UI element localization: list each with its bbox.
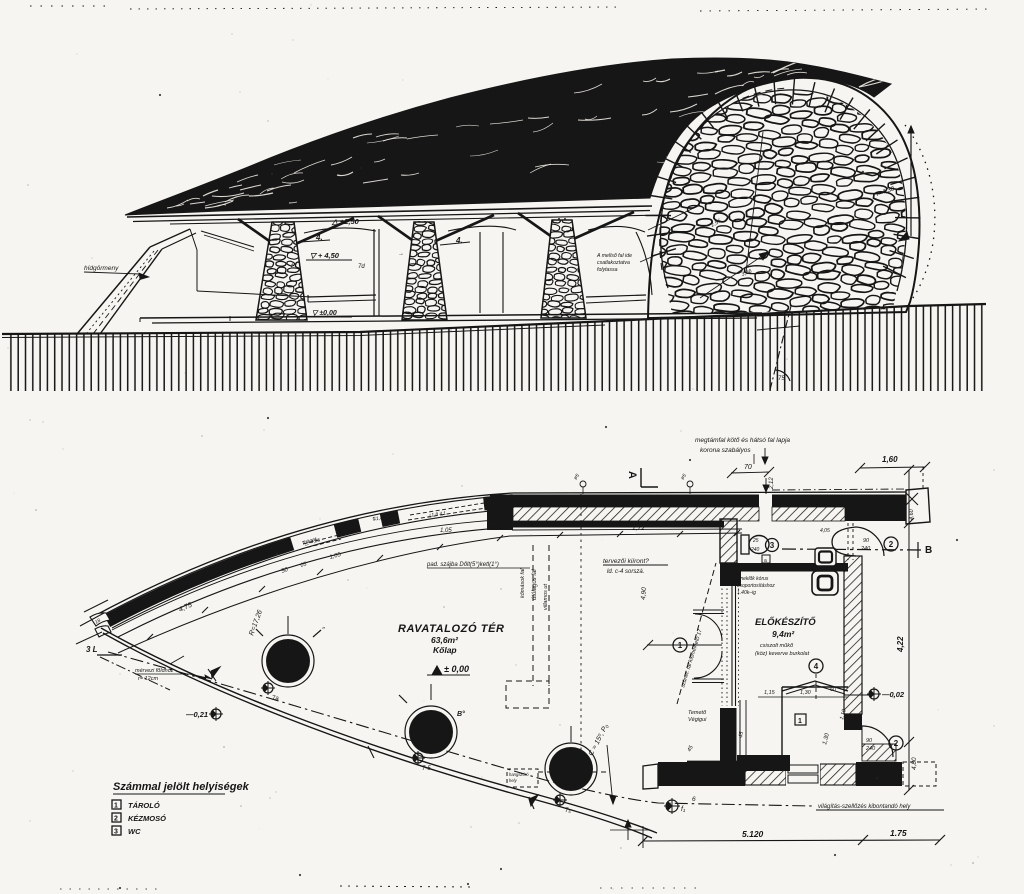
svg-text:villamos ut: villamos ut	[543, 584, 549, 610]
svg-text:megtámfal kötő és hátsó fal la: megtámfal kötő és hátsó fal lapja	[695, 437, 790, 444]
svg-text:RAVATALOZÓ TÉR: RAVATALOZÓ TÉR	[398, 622, 505, 635]
svg-text:50: 50	[528, 523, 535, 529]
svg-text:3: 3	[770, 541, 775, 550]
svg-text:KÉZMOSÓ: KÉZMOSÓ	[128, 814, 166, 823]
svg-text:90: 90	[863, 538, 870, 544]
svg-text:hely: hely	[509, 778, 518, 783]
svg-text:△ +2,50: △ +2,50	[331, 217, 360, 226]
svg-text:csiszolt műkő: csiszolt műkő	[760, 643, 794, 649]
svg-text:4,22: 4,22	[896, 636, 905, 653]
svg-text:→: →	[398, 251, 404, 257]
svg-text:csoportosításhoz: csoportosításhoz	[737, 583, 775, 589]
svg-text:4,80: 4,80	[911, 757, 918, 770]
svg-text:1,72: 1,72	[632, 525, 645, 532]
svg-text:1.40k–ig: 1.40k–ig	[737, 590, 756, 596]
svg-text:ld. c-4 sorszá.: ld. c-4 sorszá.	[607, 569, 644, 575]
svg-text:TÁROLÓ: TÁROLÓ	[128, 801, 160, 810]
svg-text:240: 240	[860, 546, 871, 552]
svg-text:A mellső fal ide: A mellső fal ide	[596, 253, 632, 259]
svg-text:63,6m²: 63,6m²	[431, 635, 459, 645]
svg-text:4,05: 4,05	[820, 528, 830, 534]
svg-text:15: 15	[547, 523, 553, 529]
svg-text:7a: 7a	[272, 696, 279, 702]
svg-text:↗: ↗	[858, 170, 864, 177]
svg-text:B°: B°	[457, 710, 465, 718]
svg-text:Temető: Temető	[688, 710, 707, 716]
svg-text:⇅: ⇅	[578, 495, 583, 502]
svg-text:90: 90	[866, 738, 873, 744]
svg-text:1,15: 1,15	[764, 690, 776, 696]
svg-text:1,60: 1,60	[882, 455, 898, 464]
svg-text:7-5: 7-5	[422, 766, 431, 772]
svg-text:Számmal jelölt helyiségek: Számmal jelölt helyiségek	[113, 781, 250, 793]
svg-text:2: 2	[114, 816, 118, 823]
svg-text:▽ + 4,50: ▽ + 4,50	[310, 251, 340, 260]
svg-text:kőmások fal: kőmások fal	[520, 568, 526, 598]
svg-text:WC: WC	[128, 827, 141, 836]
svg-text:7₅: 7₅	[565, 808, 571, 814]
svg-text:B: B	[925, 545, 932, 556]
svg-text:1: 1	[114, 803, 118, 810]
svg-text:pad. szájba Dőlt(5°)ketl(1°): pad. szájba Dőlt(5°)ketl(1°)	[426, 562, 499, 568]
svg-text:60: 60	[830, 687, 837, 693]
svg-text:mérvezi főldhöz: mérvezi főldhöz	[135, 668, 174, 674]
svg-text:1: 1	[678, 641, 683, 650]
svg-text:ELŐKÉSZÍTŐ: ELŐKÉSZÍTŐ	[755, 616, 816, 628]
svg-text:világítás-szellőzés kibontandó: világítás-szellőzés kibontandó hely	[818, 804, 911, 810]
svg-text:5.120: 5.120	[742, 829, 764, 839]
svg-text:1: 1	[798, 718, 802, 725]
svg-text:A: A	[626, 471, 638, 479]
svg-text:25: 25	[752, 538, 759, 544]
svg-text:66: 66	[489, 526, 496, 532]
svg-text:hídgörmeny: hídgörmeny	[84, 265, 119, 272]
svg-text:—0,21: —0,21	[185, 710, 208, 719]
svg-text:korona szabályos: korona szabályos	[700, 447, 751, 454]
svg-text:Éneklők kórus: Éneklők kórus	[737, 575, 769, 582]
svg-text:3: 3	[114, 829, 118, 836]
svg-text:6: 6	[692, 796, 696, 803]
svg-text:1,05: 1,05	[440, 528, 452, 534]
svg-text:75: 75	[778, 376, 785, 382]
svg-text:f.: f.	[291, 264, 294, 270]
svg-text:Kőlap: Kőlap	[433, 645, 457, 655]
svg-text:folytassa: folytassa	[597, 267, 618, 273]
svg-text:7d: 7d	[358, 264, 365, 270]
svg-text:1,30: 1,30	[800, 690, 812, 696]
svg-text:3 L: 3 L	[86, 645, 98, 654]
svg-text:▽ ±0,00: ▽ ±0,00	[312, 310, 337, 317]
svg-text:tervezői kiíront?: tervezői kiíront?	[603, 558, 649, 565]
svg-text:9,4m²: 9,4m²	[772, 629, 795, 639]
svg-text:r= 12cm: r= 12cm	[138, 676, 158, 682]
svg-text:hangszóró: hangszóró	[509, 772, 529, 777]
svg-text:csatlakoztatva: csatlakoztatva	[597, 260, 630, 266]
svg-text:1.75: 1.75	[890, 828, 907, 838]
svg-text:30: 30	[590, 522, 596, 528]
svg-text:± 0,00: ± 0,00	[444, 664, 469, 674]
svg-text:70: 70	[744, 464, 752, 471]
svg-text:útólagos fal: útólagos fal	[532, 569, 538, 600]
svg-text:2,12: 2,12	[769, 477, 775, 490]
svg-text:(köz) keverve burkolat: (köz) keverve burkolat	[755, 651, 810, 657]
svg-text:a: a	[764, 558, 767, 564]
svg-text:4,90: 4,90	[640, 587, 648, 601]
svg-text:Végigui: Végigui	[688, 717, 707, 723]
svg-text:2: 2	[889, 540, 894, 549]
svg-text:4: 4	[814, 662, 819, 671]
svg-text:240: 240	[750, 547, 760, 553]
